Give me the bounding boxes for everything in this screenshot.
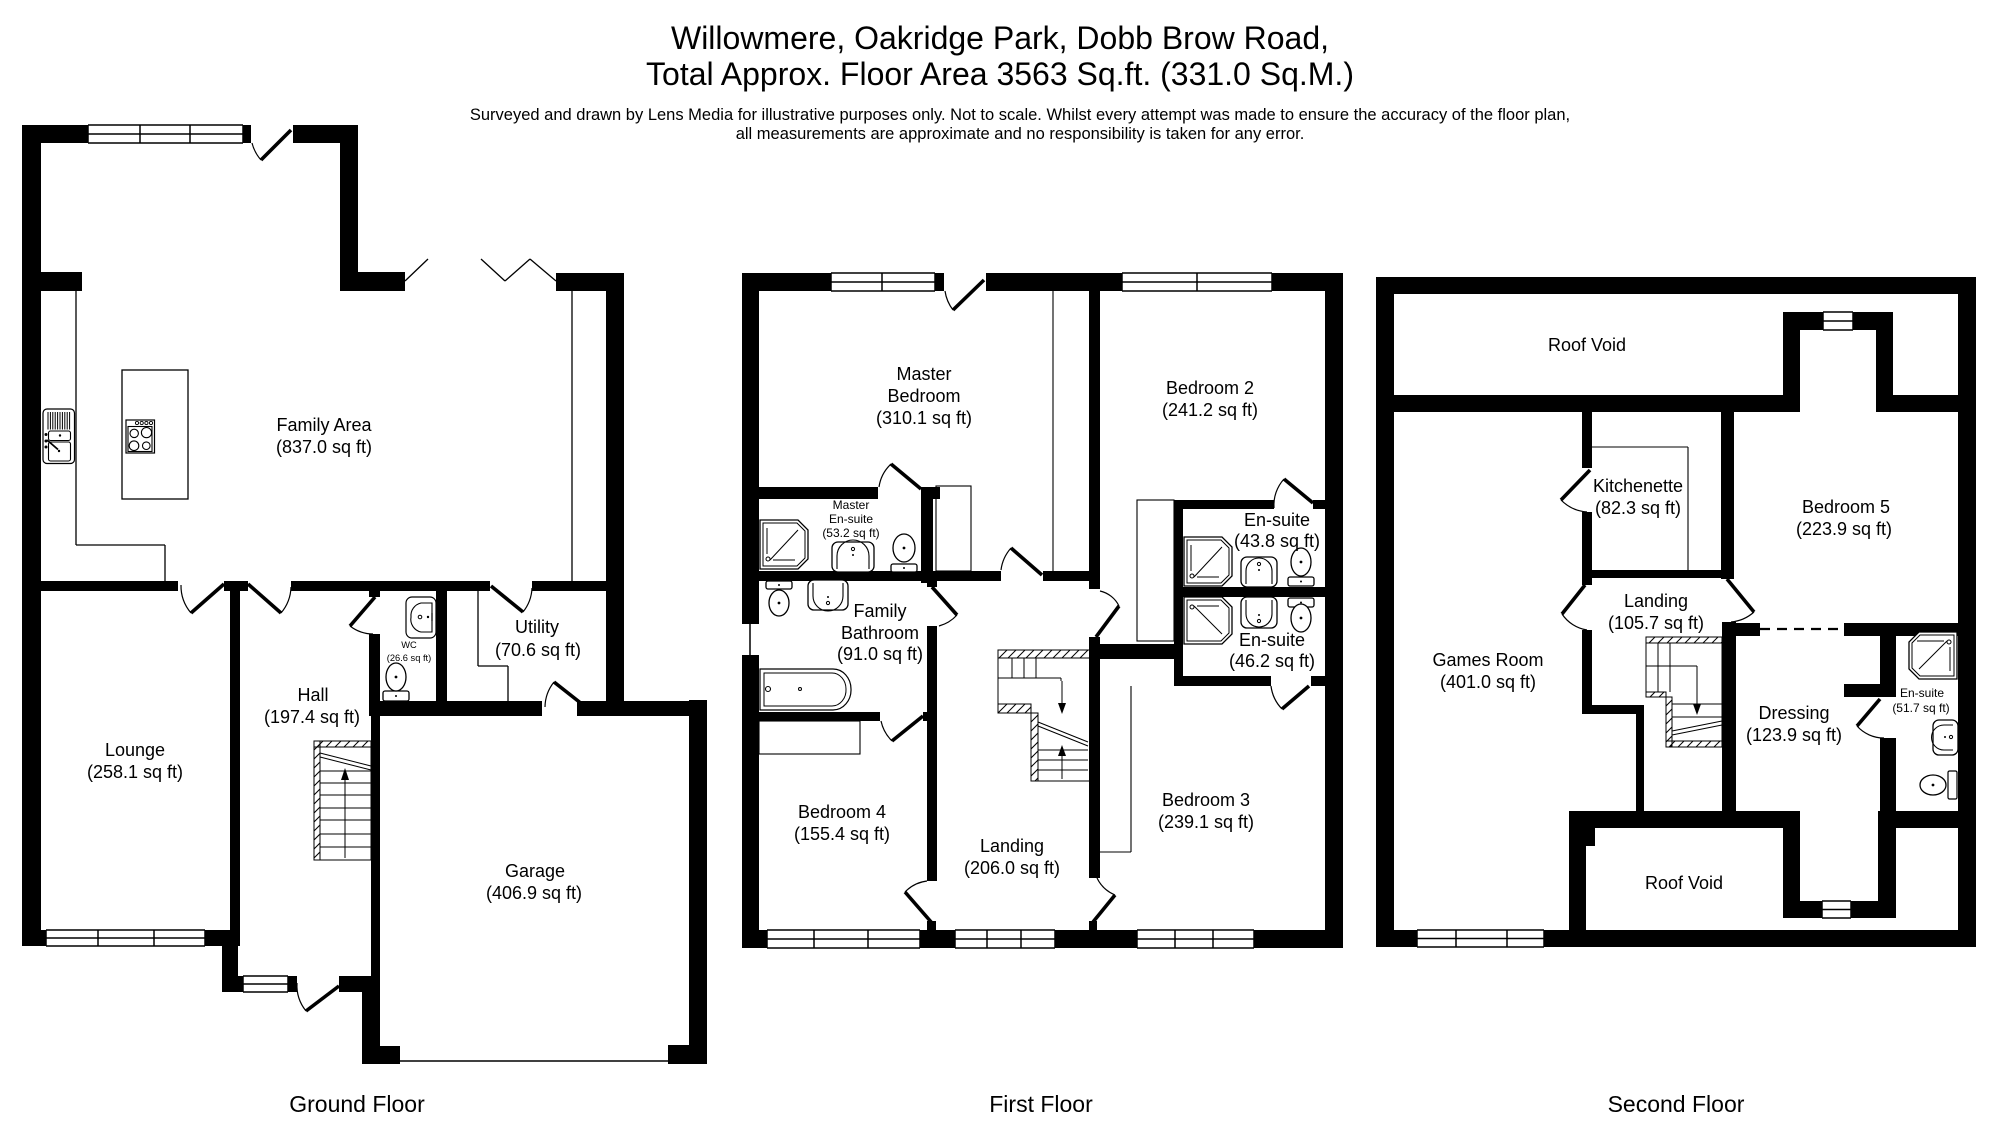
svg-text:(43.8 sq ft): (43.8 sq ft) bbox=[1234, 531, 1320, 551]
svg-text:Master: Master bbox=[896, 364, 951, 384]
svg-text:(197.4 sq ft): (197.4 sq ft) bbox=[264, 707, 360, 727]
svg-text:Utility: Utility bbox=[515, 617, 559, 637]
svg-text:(46.2 sq ft): (46.2 sq ft) bbox=[1229, 651, 1315, 671]
svg-text:Family Area: Family Area bbox=[276, 415, 372, 435]
svg-text:Roof Void: Roof Void bbox=[1548, 335, 1626, 355]
svg-text:Bedroom: Bedroom bbox=[887, 386, 960, 406]
svg-text:Bedroom 3: Bedroom 3 bbox=[1162, 790, 1250, 810]
svg-text:Surveyed and drawn by Lens Med: Surveyed and drawn by Lens Media for ill… bbox=[470, 106, 1570, 124]
svg-text:En-suite: En-suite bbox=[1239, 630, 1305, 650]
svg-text:Landing: Landing bbox=[980, 836, 1044, 856]
svg-text:Kitchenette: Kitchenette bbox=[1593, 476, 1683, 496]
svg-text:Willowmere, Oakridge Park, Dob: Willowmere, Oakridge Park, Dobb Brow Roa… bbox=[671, 20, 1329, 56]
svg-text:(51.7 sq ft): (51.7 sq ft) bbox=[1892, 701, 1949, 715]
svg-text:Lounge: Lounge bbox=[105, 740, 165, 760]
svg-text:(241.2 sq ft): (241.2 sq ft) bbox=[1162, 400, 1258, 420]
svg-text:(239.1 sq ft): (239.1 sq ft) bbox=[1158, 812, 1254, 832]
svg-text:Bathroom: Bathroom bbox=[841, 623, 919, 643]
svg-text:(223.9 sq ft): (223.9 sq ft) bbox=[1796, 519, 1892, 539]
svg-text:(406.9 sq ft): (406.9 sq ft) bbox=[486, 883, 582, 903]
svg-text:(91.0 sq ft): (91.0 sq ft) bbox=[837, 644, 923, 664]
svg-text:WC: WC bbox=[401, 640, 417, 650]
svg-text:(837.0 sq ft): (837.0 sq ft) bbox=[276, 437, 372, 457]
svg-text:Dressing: Dressing bbox=[1758, 703, 1829, 723]
svg-text:Bedroom 4: Bedroom 4 bbox=[798, 802, 886, 822]
svg-text:(401.0 sq ft): (401.0 sq ft) bbox=[1440, 672, 1536, 692]
svg-text:Second Floor: Second Floor bbox=[1608, 1091, 1745, 1117]
svg-text:First Floor: First Floor bbox=[989, 1091, 1093, 1117]
svg-text:Hall: Hall bbox=[297, 685, 328, 705]
svg-text:(310.1 sq ft): (310.1 sq ft) bbox=[876, 408, 972, 428]
svg-text:Garage: Garage bbox=[505, 861, 565, 881]
svg-text:(53.2 sq ft): (53.2 sq ft) bbox=[822, 526, 879, 540]
svg-text:Roof Void: Roof Void bbox=[1645, 873, 1723, 893]
svg-text:Master: Master bbox=[833, 498, 870, 512]
svg-text:all measurements are approxima: all measurements are approximate and no … bbox=[736, 125, 1305, 143]
svg-text:(206.0 sq ft): (206.0 sq ft) bbox=[964, 858, 1060, 878]
svg-text:En-suite: En-suite bbox=[1900, 686, 1944, 700]
svg-text:En-suite: En-suite bbox=[1244, 510, 1310, 530]
svg-text:Bedroom 2: Bedroom 2 bbox=[1166, 378, 1254, 398]
svg-text:Games Room: Games Room bbox=[1432, 650, 1543, 670]
svg-text:(105.7 sq ft): (105.7 sq ft) bbox=[1608, 613, 1704, 633]
svg-text:Total Approx. Floor Area 3563: Total Approx. Floor Area 3563 Sq.ft. (33… bbox=[646, 56, 1354, 92]
svg-text:(258.1 sq ft): (258.1 sq ft) bbox=[87, 762, 183, 782]
svg-text:(26.6 sq ft): (26.6 sq ft) bbox=[387, 653, 431, 663]
svg-text:En-suite: En-suite bbox=[829, 512, 873, 526]
svg-text:(155.4 sq ft): (155.4 sq ft) bbox=[794, 824, 890, 844]
svg-text:(70.6 sq ft): (70.6 sq ft) bbox=[495, 640, 581, 660]
svg-text:Landing: Landing bbox=[1624, 591, 1688, 611]
svg-text:Family: Family bbox=[854, 601, 907, 621]
svg-text:(82.3 sq ft): (82.3 sq ft) bbox=[1595, 498, 1681, 518]
svg-text:(123.9 sq ft): (123.9 sq ft) bbox=[1746, 725, 1842, 745]
svg-text:Bedroom 5: Bedroom 5 bbox=[1802, 497, 1890, 517]
svg-text:Ground Floor: Ground Floor bbox=[289, 1091, 425, 1117]
